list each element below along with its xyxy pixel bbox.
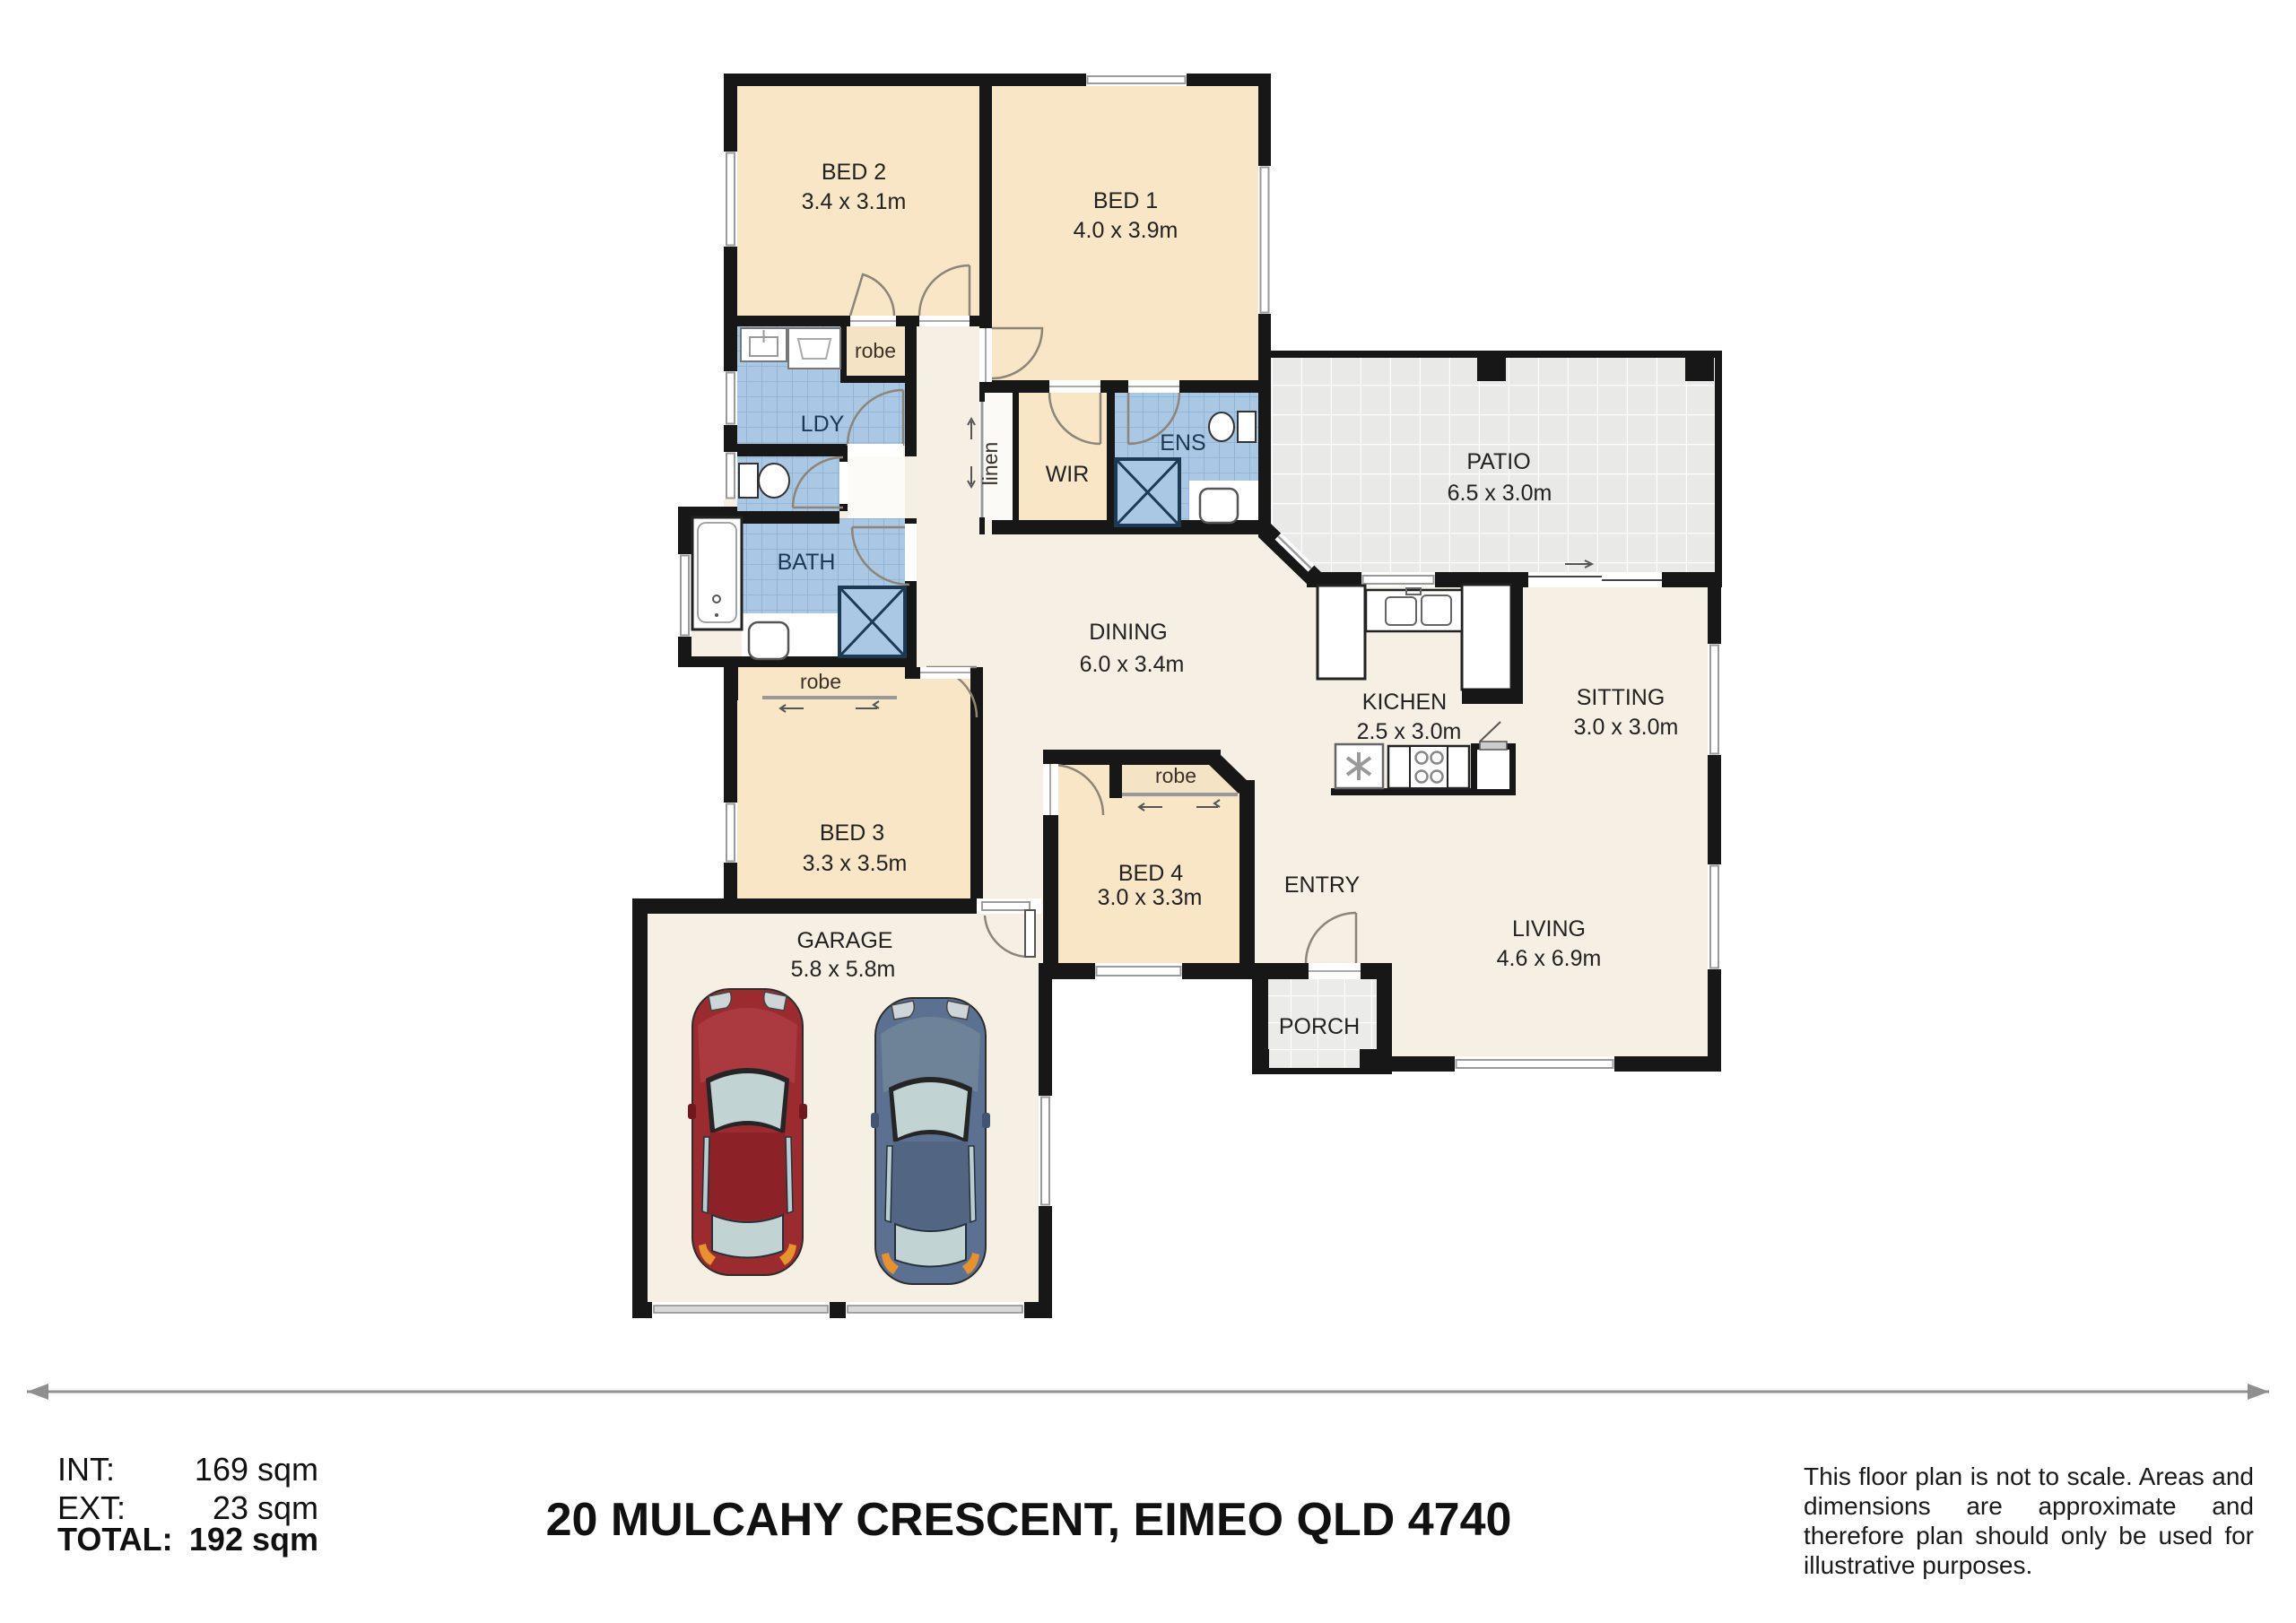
svg-text:169 sqm: 169 sqm [195,1451,318,1488]
svg-text:BATH: BATH [778,550,836,575]
svg-text:5.8 x 5.8m: 5.8 x 5.8m [791,957,896,982]
svg-text:robe: robe [1155,764,1196,787]
svg-text:6.5 x 3.0m: 6.5 x 3.0m [1448,481,1552,506]
svg-text:INT:: INT: [57,1451,115,1488]
svg-text:PORCH: PORCH [1279,1014,1360,1039]
svg-text:BED 3: BED 3 [820,820,884,846]
svg-text:SITTING: SITTING [1577,685,1665,710]
svg-text:BED 1: BED 1 [1093,188,1158,213]
svg-text:3.3 x 3.5m: 3.3 x 3.5m [803,851,908,876]
svg-text:3.0 x 3.0m: 3.0 x 3.0m [1574,715,1679,740]
svg-text:ENTRY: ENTRY [1284,872,1361,898]
svg-text:BED 4: BED 4 [1118,861,1183,886]
svg-text:3.0 x 3.3m: 3.0 x 3.3m [1098,885,1203,910]
svg-text:192 sqm: 192 sqm [189,1521,318,1558]
svg-text:ENS: ENS [1160,430,1205,456]
svg-text:robe: robe [800,670,841,693]
svg-text:LIVING: LIVING [1512,916,1586,942]
svg-text:LDY: LDY [801,412,845,437]
svg-text:GARAGE: GARAGE [797,928,893,953]
svg-text:TOTAL:: TOTAL: [57,1521,173,1558]
svg-text:20 MULCAHY CRESCENT, EIMEO QLD: 20 MULCAHY CRESCENT, EIMEO QLD 4740 [546,1494,1512,1546]
svg-text:WIR: WIR [1046,462,1090,487]
svg-text:DINING: DINING [1089,620,1168,645]
svg-text:6.0 x 3.4m: 6.0 x 3.4m [1080,652,1185,677]
svg-text:robe: robe [855,339,896,362]
svg-text:4.0 x 3.9m: 4.0 x 3.9m [1074,218,1178,243]
svg-text:3.4 x 3.1m: 3.4 x 3.1m [802,189,907,214]
svg-text:2.5 x 3.0m: 2.5 x 3.0m [1357,719,1462,744]
svg-text:4.6 x 6.9m: 4.6 x 6.9m [1497,946,1602,971]
svg-text:linen: linen [978,442,1002,486]
svg-text:BED 2: BED 2 [822,160,886,185]
svg-text:KICHEN: KICHEN [1362,690,1447,715]
svg-text:PATIO: PATIO [1466,449,1530,474]
